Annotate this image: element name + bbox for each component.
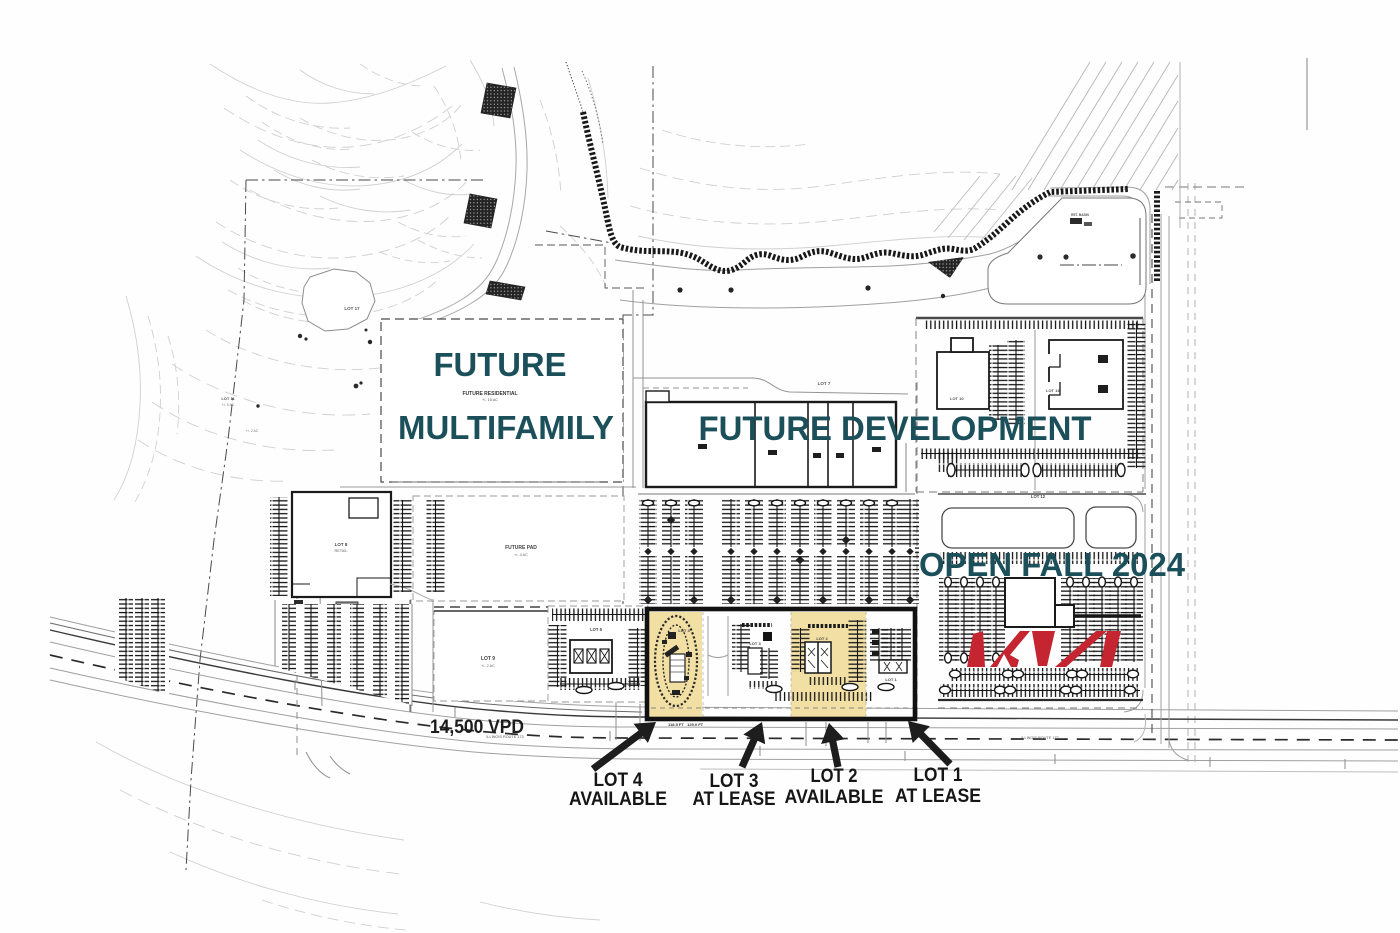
svg-text:LOT 11: LOT 11 [221, 396, 235, 401]
svg-text:RETAIL: RETAIL [334, 549, 347, 553]
svg-text:LOT 1: LOT 1 [914, 765, 963, 786]
svg-text:+/- 15 AC: +/- 15 AC [482, 398, 498, 402]
svg-text:RET. BASIN: RET. BASIN [1071, 213, 1089, 217]
svg-text:+/- 5 AC: +/- 5 AC [222, 403, 235, 407]
svg-text:FUTURE PAD: FUTURE PAD [505, 545, 537, 551]
svg-text:LOT 13: LOT 13 [1046, 388, 1060, 393]
svg-text:LOT 7: LOT 7 [818, 381, 831, 386]
svg-text:MULTIFAMILY: MULTIFAMILY [398, 409, 614, 446]
svg-text:ILLINOIS ROUTE 173: ILLINOIS ROUTE 173 [1021, 736, 1058, 740]
svg-text:LOT 17: LOT 17 [344, 306, 360, 311]
svg-text:FUTURE DEVELOPMENT: FUTURE DEVELOPMENT [699, 410, 1092, 448]
svg-text:FUTURE RESIDENTIAL: FUTURE RESIDENTIAL [463, 391, 518, 397]
svg-text:LOT 2: LOT 2 [811, 766, 858, 787]
svg-text:LOT 4: LOT 4 [594, 770, 643, 791]
svg-text:LOT 8: LOT 8 [335, 542, 348, 547]
svg-text:LOT 1: LOT 1 [885, 677, 897, 682]
svg-text:+/- 2 AC: +/- 2 AC [481, 664, 495, 668]
svg-text:LOT 2: LOT 2 [816, 636, 828, 641]
svg-text:AVAILABLE: AVAILABLE [569, 789, 667, 810]
svg-text:+/- 4 AC: +/- 4 AC [514, 553, 528, 557]
svg-text:OPEN FALL 2024: OPEN FALL 2024 [919, 546, 1186, 583]
svg-text:AT LEASE: AT LEASE [895, 786, 981, 807]
svg-text:LOT 5: LOT 5 [590, 627, 603, 632]
svg-text:LOT 9: LOT 9 [481, 656, 495, 662]
svg-text:LOT 12: LOT 12 [1031, 494, 1046, 499]
svg-text:118.5 FT 125.0 FT: 118.5 FT 125.0 FT [668, 722, 704, 727]
svg-text:LOT 4: LOT 4 [678, 628, 690, 633]
svg-text:ILLINOIS ROUTE 173: ILLINOIS ROUTE 173 [486, 735, 523, 739]
svg-text:LOT 10: LOT 10 [950, 396, 964, 401]
svg-text:AVAILABLE: AVAILABLE [785, 787, 884, 808]
svg-text:AT LEASE: AT LEASE [693, 789, 776, 810]
svg-text:LOT 3: LOT 3 [749, 641, 761, 646]
svg-text:+/- 2 AC: +/- 2 AC [246, 429, 259, 433]
svg-text:FUTURE: FUTURE [434, 346, 567, 383]
